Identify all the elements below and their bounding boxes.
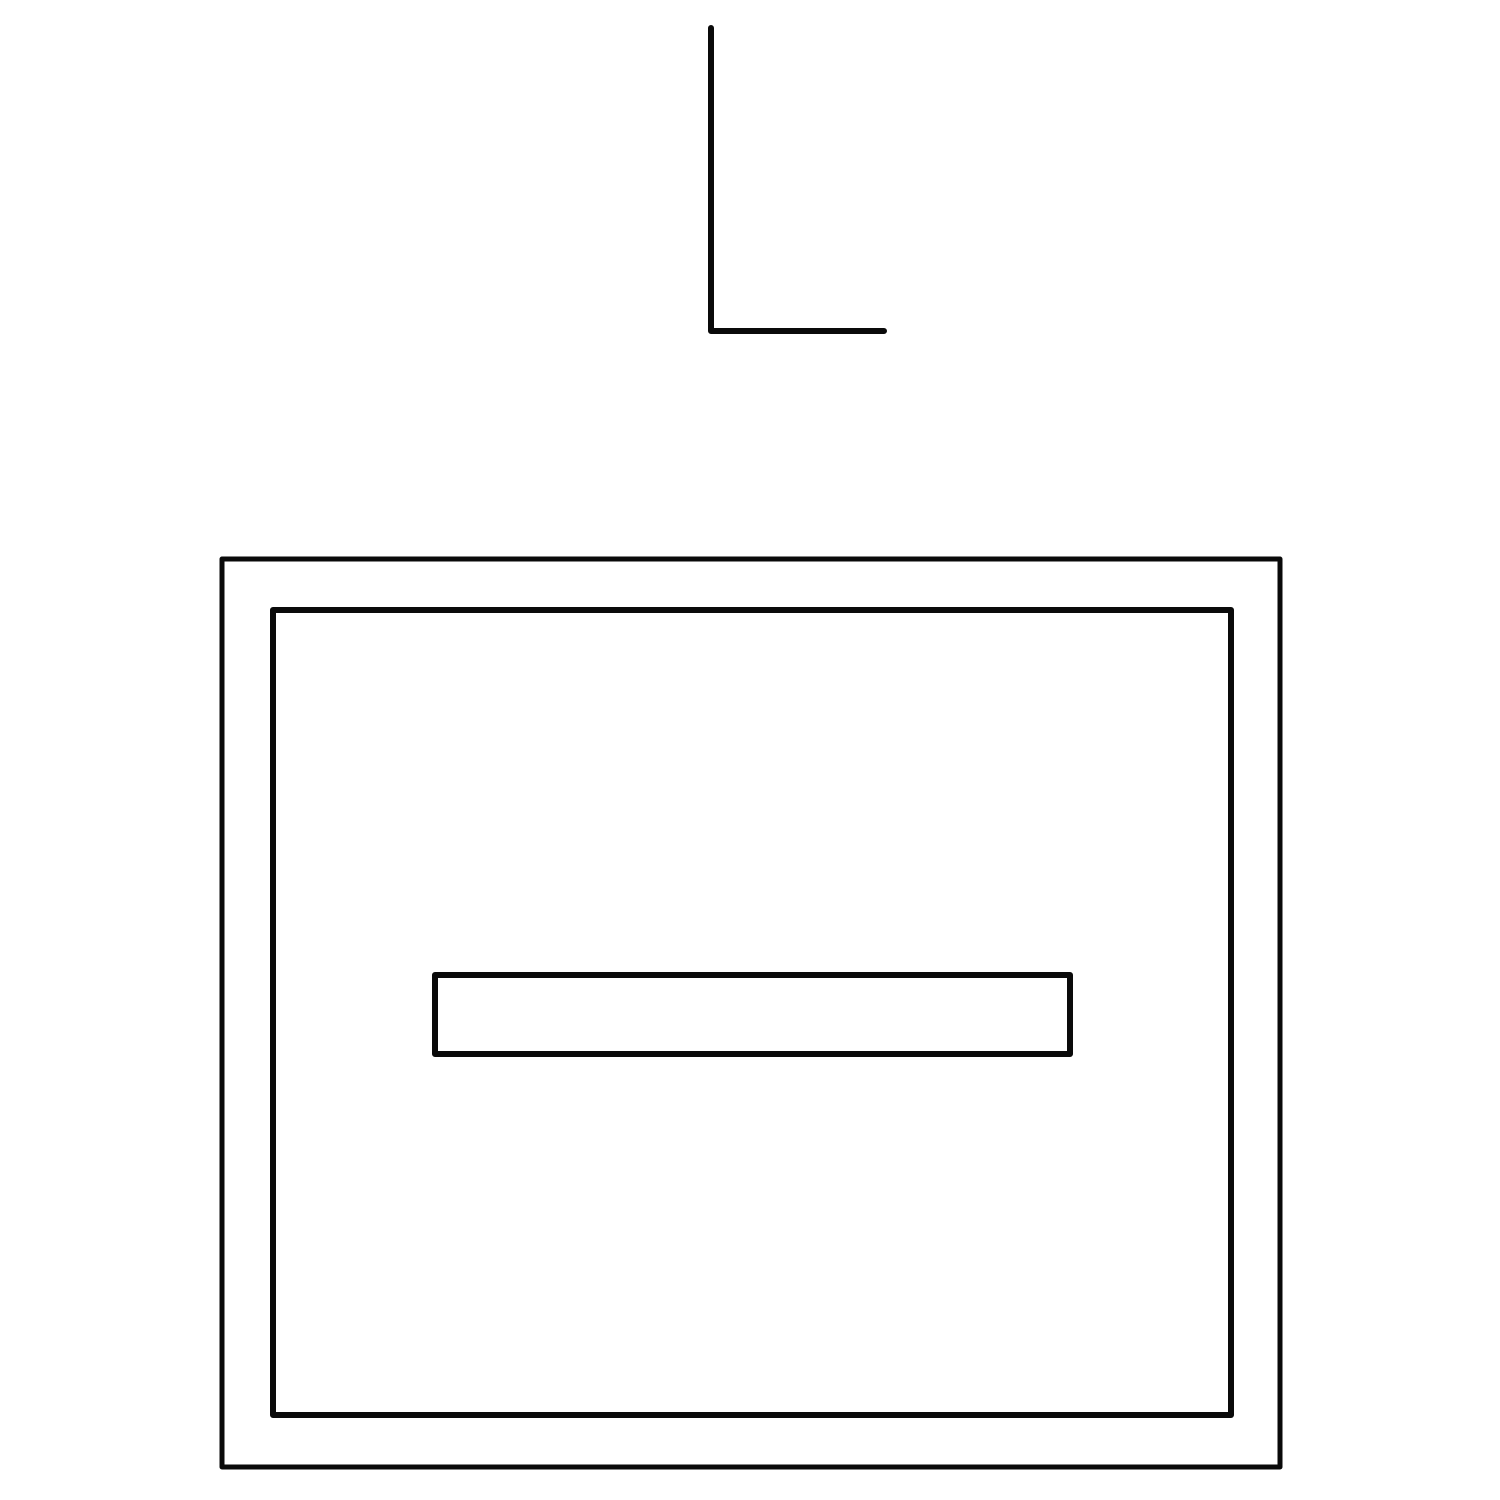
horizontal-bar-rectangle (435, 975, 1070, 1054)
l-shape-polyline (711, 28, 884, 331)
outer-rectangle (222, 559, 1280, 1467)
line-drawing (0, 0, 1500, 1500)
drawing-canvas (0, 0, 1500, 1500)
inner-rectangle (273, 610, 1231, 1415)
